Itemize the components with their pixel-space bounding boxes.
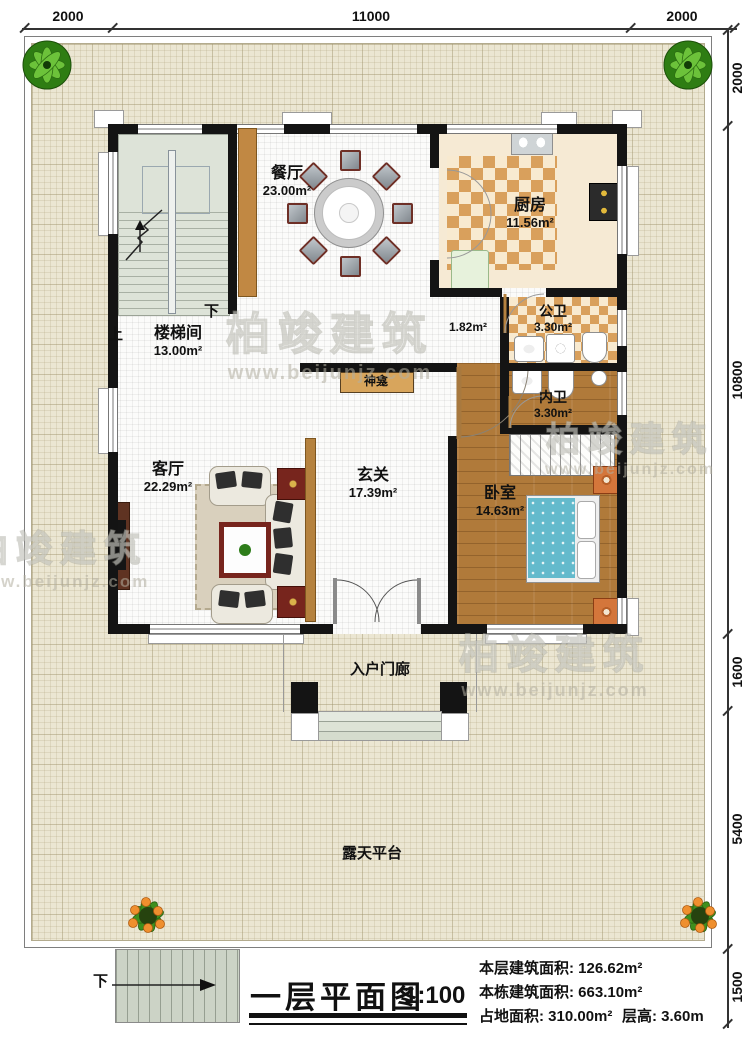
stair-break-line (126, 210, 162, 260)
entry-double-door (333, 578, 421, 624)
bedroom-door (459, 367, 528, 439)
public-bath-door (505, 294, 544, 333)
outdoor-stair-arrow-head (200, 979, 216, 991)
stair-arrow-head (135, 220, 145, 230)
plant-bottom-right (681, 898, 718, 934)
plant-bottom-left (129, 898, 166, 934)
plant-top-right (664, 41, 712, 89)
plan-overlay-graphics (0, 0, 750, 1040)
inner-bath-door (510, 396, 543, 428)
floor-plan-page: 2000 11000 2000 2000 10800 1600 5400 150… (0, 0, 750, 1040)
plant-top-left (23, 41, 71, 89)
kitchen-door (447, 170, 491, 258)
